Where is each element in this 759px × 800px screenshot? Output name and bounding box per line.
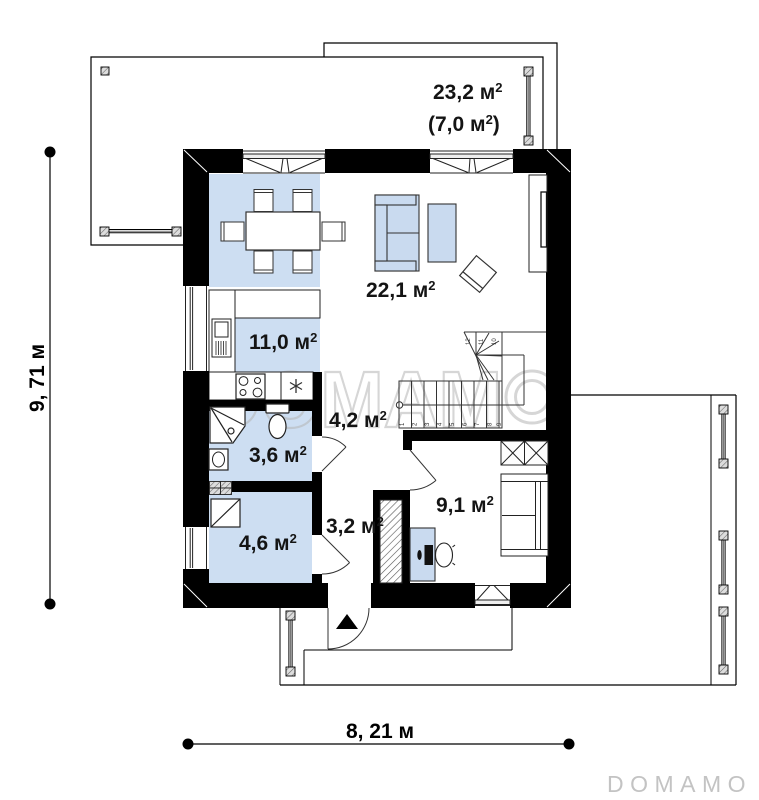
svg-text:9,1 м2: 9,1 м2 <box>436 493 494 517</box>
svg-text:11: 11 <box>479 338 485 345</box>
svg-text:4,6 м2: 4,6 м2 <box>239 531 297 555</box>
svg-text:DOMAMO: DOMAMO <box>607 771 752 797</box>
svg-text:22,1 м2: 22,1 м2 <box>366 278 435 302</box>
svg-text:12: 12 <box>466 338 472 345</box>
svg-text:8, 21 м: 8, 21 м <box>346 720 414 743</box>
svg-text:10: 10 <box>492 338 498 345</box>
svg-text:11,0 м2: 11,0 м2 <box>249 330 317 354</box>
svg-text:9, 71 м: 9, 71 м <box>26 344 49 412</box>
svg-text:3,2 м2: 3,2 м2 <box>326 514 384 538</box>
svg-text:4,2 м2: 4,2 м2 <box>329 408 387 432</box>
svg-text:3,6 м2: 3,6 м2 <box>249 443 307 467</box>
svg-text:23,2 м2: 23,2 м2 <box>433 80 502 104</box>
